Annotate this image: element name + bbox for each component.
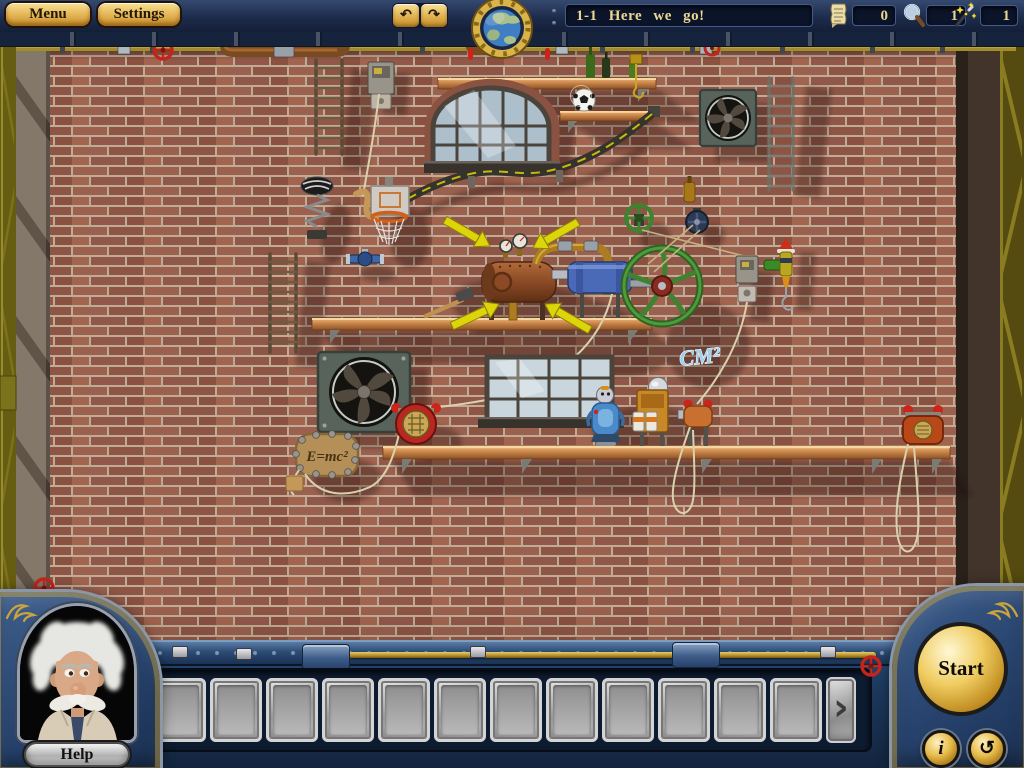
tray-scroll-right-button[interactable]: › [826, 677, 856, 743]
tray-slot[interactable] [546, 678, 598, 742]
gold-flourish-icon [4, 598, 44, 624]
help-button[interactable]: Help [24, 742, 130, 767]
redo-icon[interactable]: ↷ [421, 4, 447, 27]
notes-counter: 0 [852, 5, 896, 26]
tray-slot[interactable] [658, 678, 710, 742]
game-screen: CM² [0, 0, 1024, 768]
tray-slot[interactable] [266, 678, 318, 742]
start-button[interactable]: Start [914, 622, 1008, 716]
emc2-plaque[interactable]: E=mc² [293, 431, 360, 479]
professor-portrait[interactable] [20, 606, 134, 740]
arched-window [424, 83, 560, 173]
menu-button[interactable]: Menu [6, 3, 90, 26]
tray-slot[interactable] [210, 678, 262, 742]
tray-slot[interactable] [714, 678, 766, 742]
fan-right[interactable] [700, 90, 756, 146]
parts-tray: ‹ › [112, 668, 872, 752]
level-title: 1-1 Here we go! [565, 4, 813, 27]
red-valve-rail[interactable] [858, 654, 884, 687]
valve-wheel-green[interactable] [626, 205, 652, 231]
winch-top[interactable] [368, 62, 394, 109]
undo-icon[interactable]: ↶ [393, 4, 419, 27]
info-button[interactable]: i [922, 730, 960, 768]
wand-icon[interactable] [952, 1, 978, 34]
undo-redo-group: ↶ ↷ [392, 3, 448, 28]
tray-slot[interactable] [490, 678, 542, 742]
globe-medallion[interactable] [458, 0, 546, 60]
magnifier-icon[interactable] [902, 2, 925, 34]
tray-slot[interactable] [602, 678, 654, 742]
pipe-clamp [302, 644, 350, 670]
tray-slot[interactable] [770, 678, 822, 742]
wand-counter: 1 [980, 5, 1018, 26]
scroll-icon[interactable] [828, 2, 849, 34]
settings-button[interactable]: Settings [98, 3, 180, 26]
gold-flourish-icon [980, 596, 1020, 622]
tray-slot[interactable] [322, 678, 374, 742]
reset-button[interactable]: ↺ [968, 730, 1006, 768]
tray-slot[interactable] [434, 678, 486, 742]
console-gold-pipe [348, 652, 876, 658]
tray-slot[interactable] [154, 678, 206, 742]
svg-text:E=mc²: E=mc² [305, 449, 348, 465]
wall-bracket [286, 476, 303, 491]
cm2-graffiti: CM² [678, 342, 722, 371]
pipe-clamp [672, 642, 720, 668]
tray-slot[interactable] [378, 678, 430, 742]
winch-right[interactable] [736, 256, 758, 302]
